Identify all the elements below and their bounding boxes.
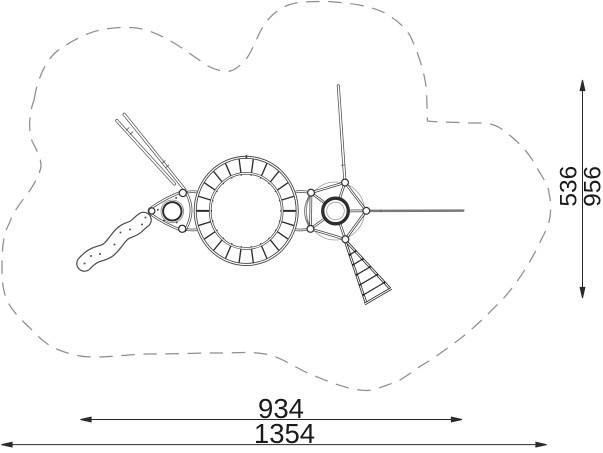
svg-text:536: 536 [556, 166, 583, 207]
svg-text:956: 956 [580, 166, 603, 207]
svg-text:1354: 1354 [254, 418, 315, 449]
